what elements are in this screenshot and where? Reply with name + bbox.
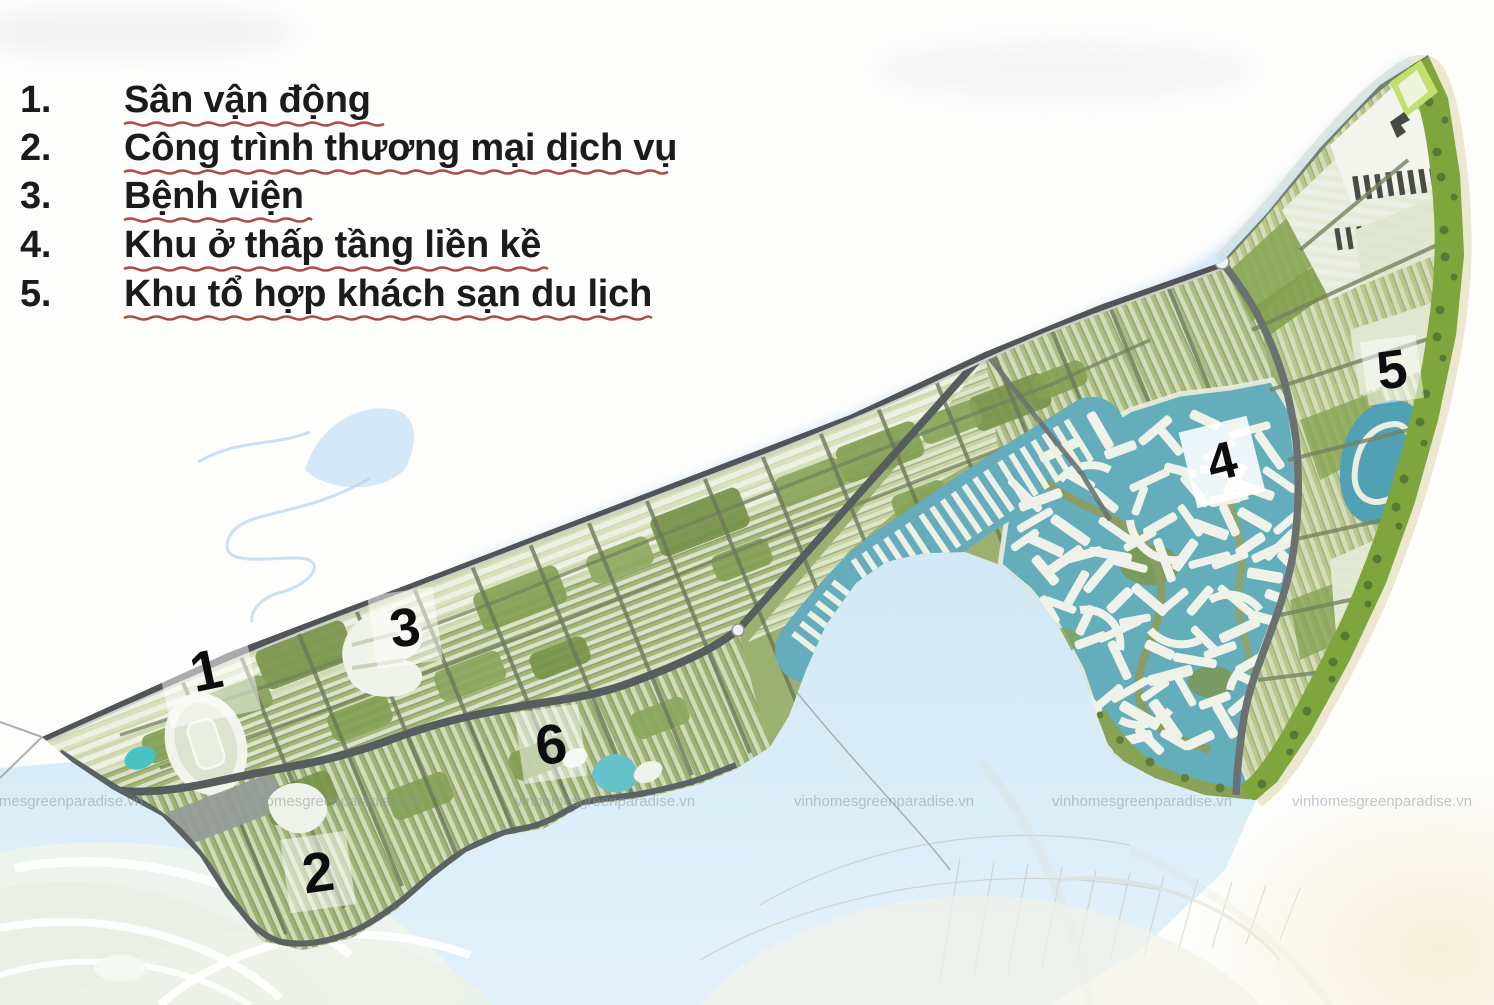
svg-text:Khu tổ hợp khách sạn du lịch: Khu tổ hợp khách sạn du lịch (124, 273, 652, 315)
svg-text:vinhomesgreenparadise.vn: vinhomesgreenparadise.vn (0, 793, 143, 810)
svg-text:Công trình thương mại dịch vụ: Công trình thương mại dịch vụ (124, 127, 677, 169)
svg-text:4.: 4. (20, 224, 51, 266)
svg-text:5.: 5. (20, 273, 51, 315)
svg-text:vinhomesgreenparadise.vn: vinhomesgreenparadise.vn (794, 793, 974, 810)
svg-text:vinhomesgreenparadise.vn: vinhomesgreenparadise.vn (238, 793, 418, 810)
svg-text:Sân vận động: Sân vận động (124, 79, 371, 121)
svg-text:1.: 1. (20, 79, 51, 121)
svg-text:Khu ở thấp tầng liền kề: Khu ở thấp tầng liền kề (124, 224, 541, 266)
svg-text:vinhomesgreenparadise.vn: vinhomesgreenparadise.vn (1292, 793, 1472, 810)
svg-text:Bệnh viện: Bệnh viện (124, 175, 304, 217)
svg-text:2.: 2. (20, 127, 51, 169)
svg-text:vinhomesgreenparadise.vn: vinhomesgreenparadise.vn (515, 793, 695, 810)
svg-text:3.: 3. (20, 175, 51, 217)
svg-text:vinhomesgreenparadise.vn: vinhomesgreenparadise.vn (1052, 793, 1232, 810)
